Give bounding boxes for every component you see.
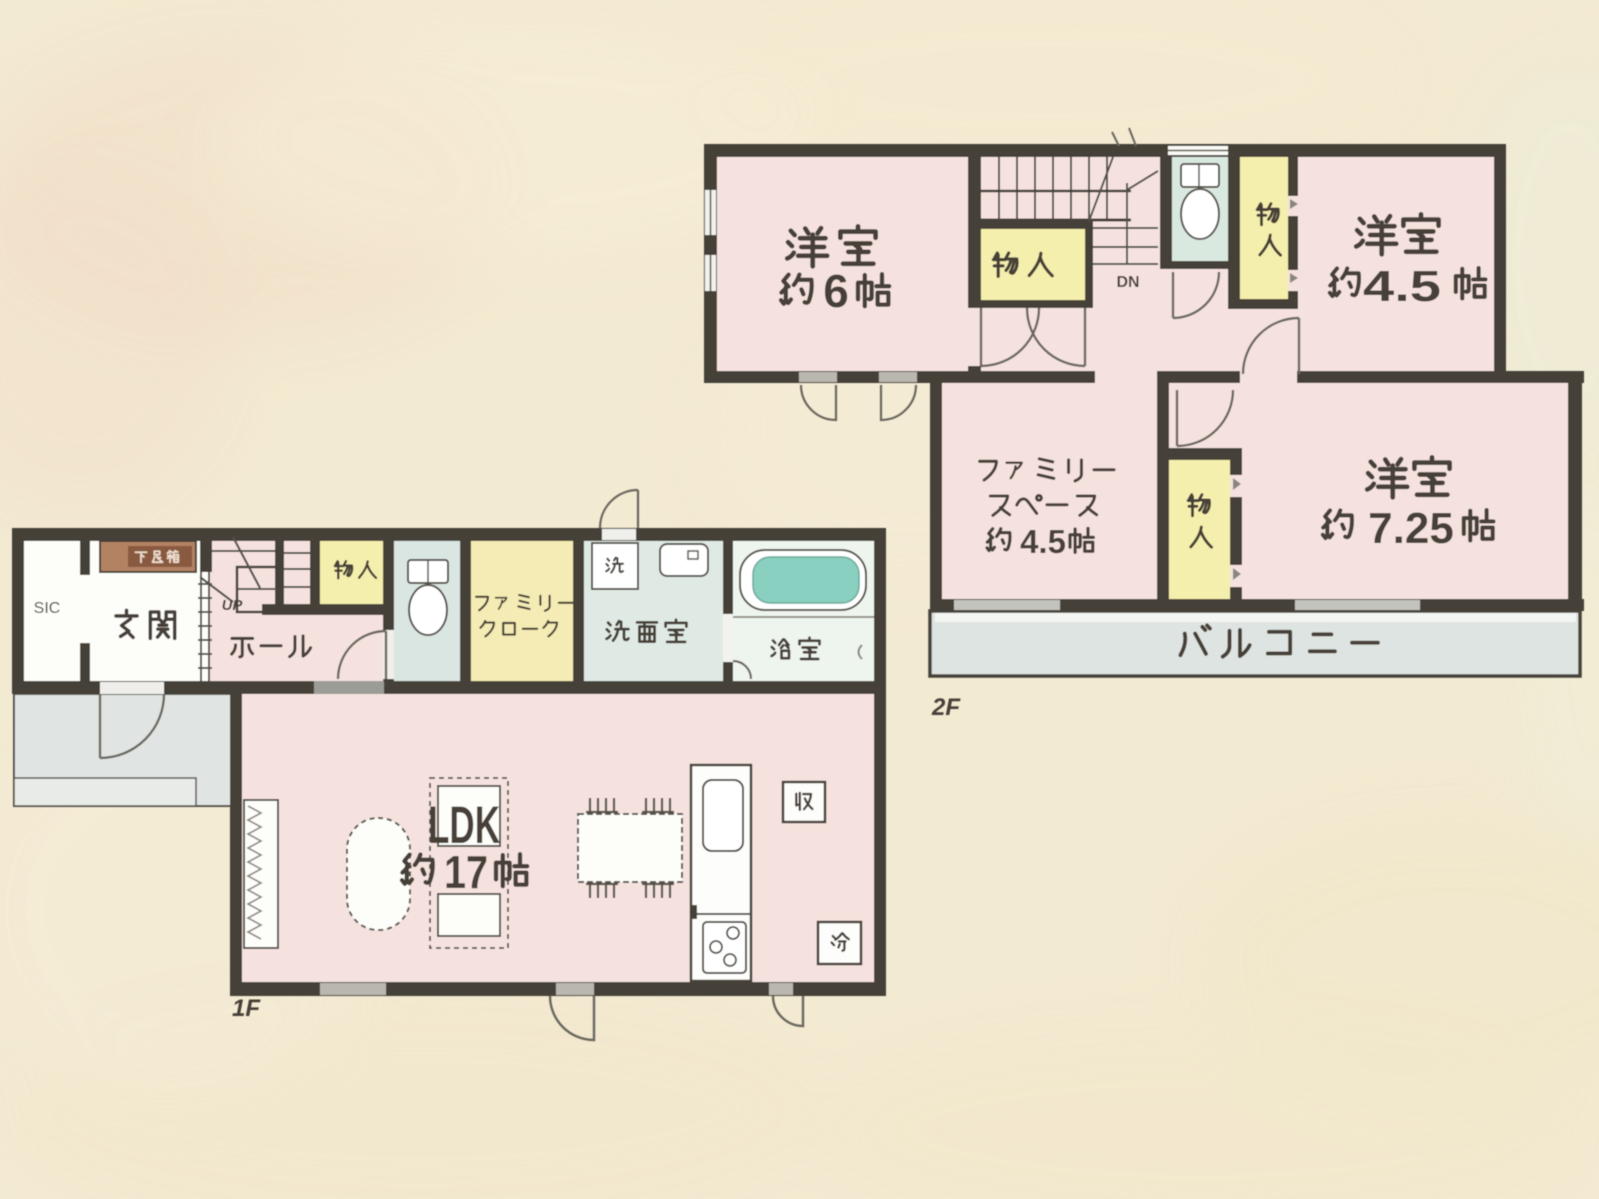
svg-text:4.5: 4.5 [1020,523,1066,560]
svg-text:6: 6 [823,265,849,317]
svg-text:1F: 1F [232,995,261,1022]
svg-text:UP: UP [222,597,244,614]
svg-text:7.25: 7.25 [1368,504,1454,553]
svg-text:17: 17 [444,846,488,898]
svg-text:SIC: SIC [34,600,61,617]
svg-text:DN: DN [1116,274,1139,291]
svg-text:4.5: 4.5 [1363,262,1441,311]
svg-text:2F: 2F [931,694,961,721]
